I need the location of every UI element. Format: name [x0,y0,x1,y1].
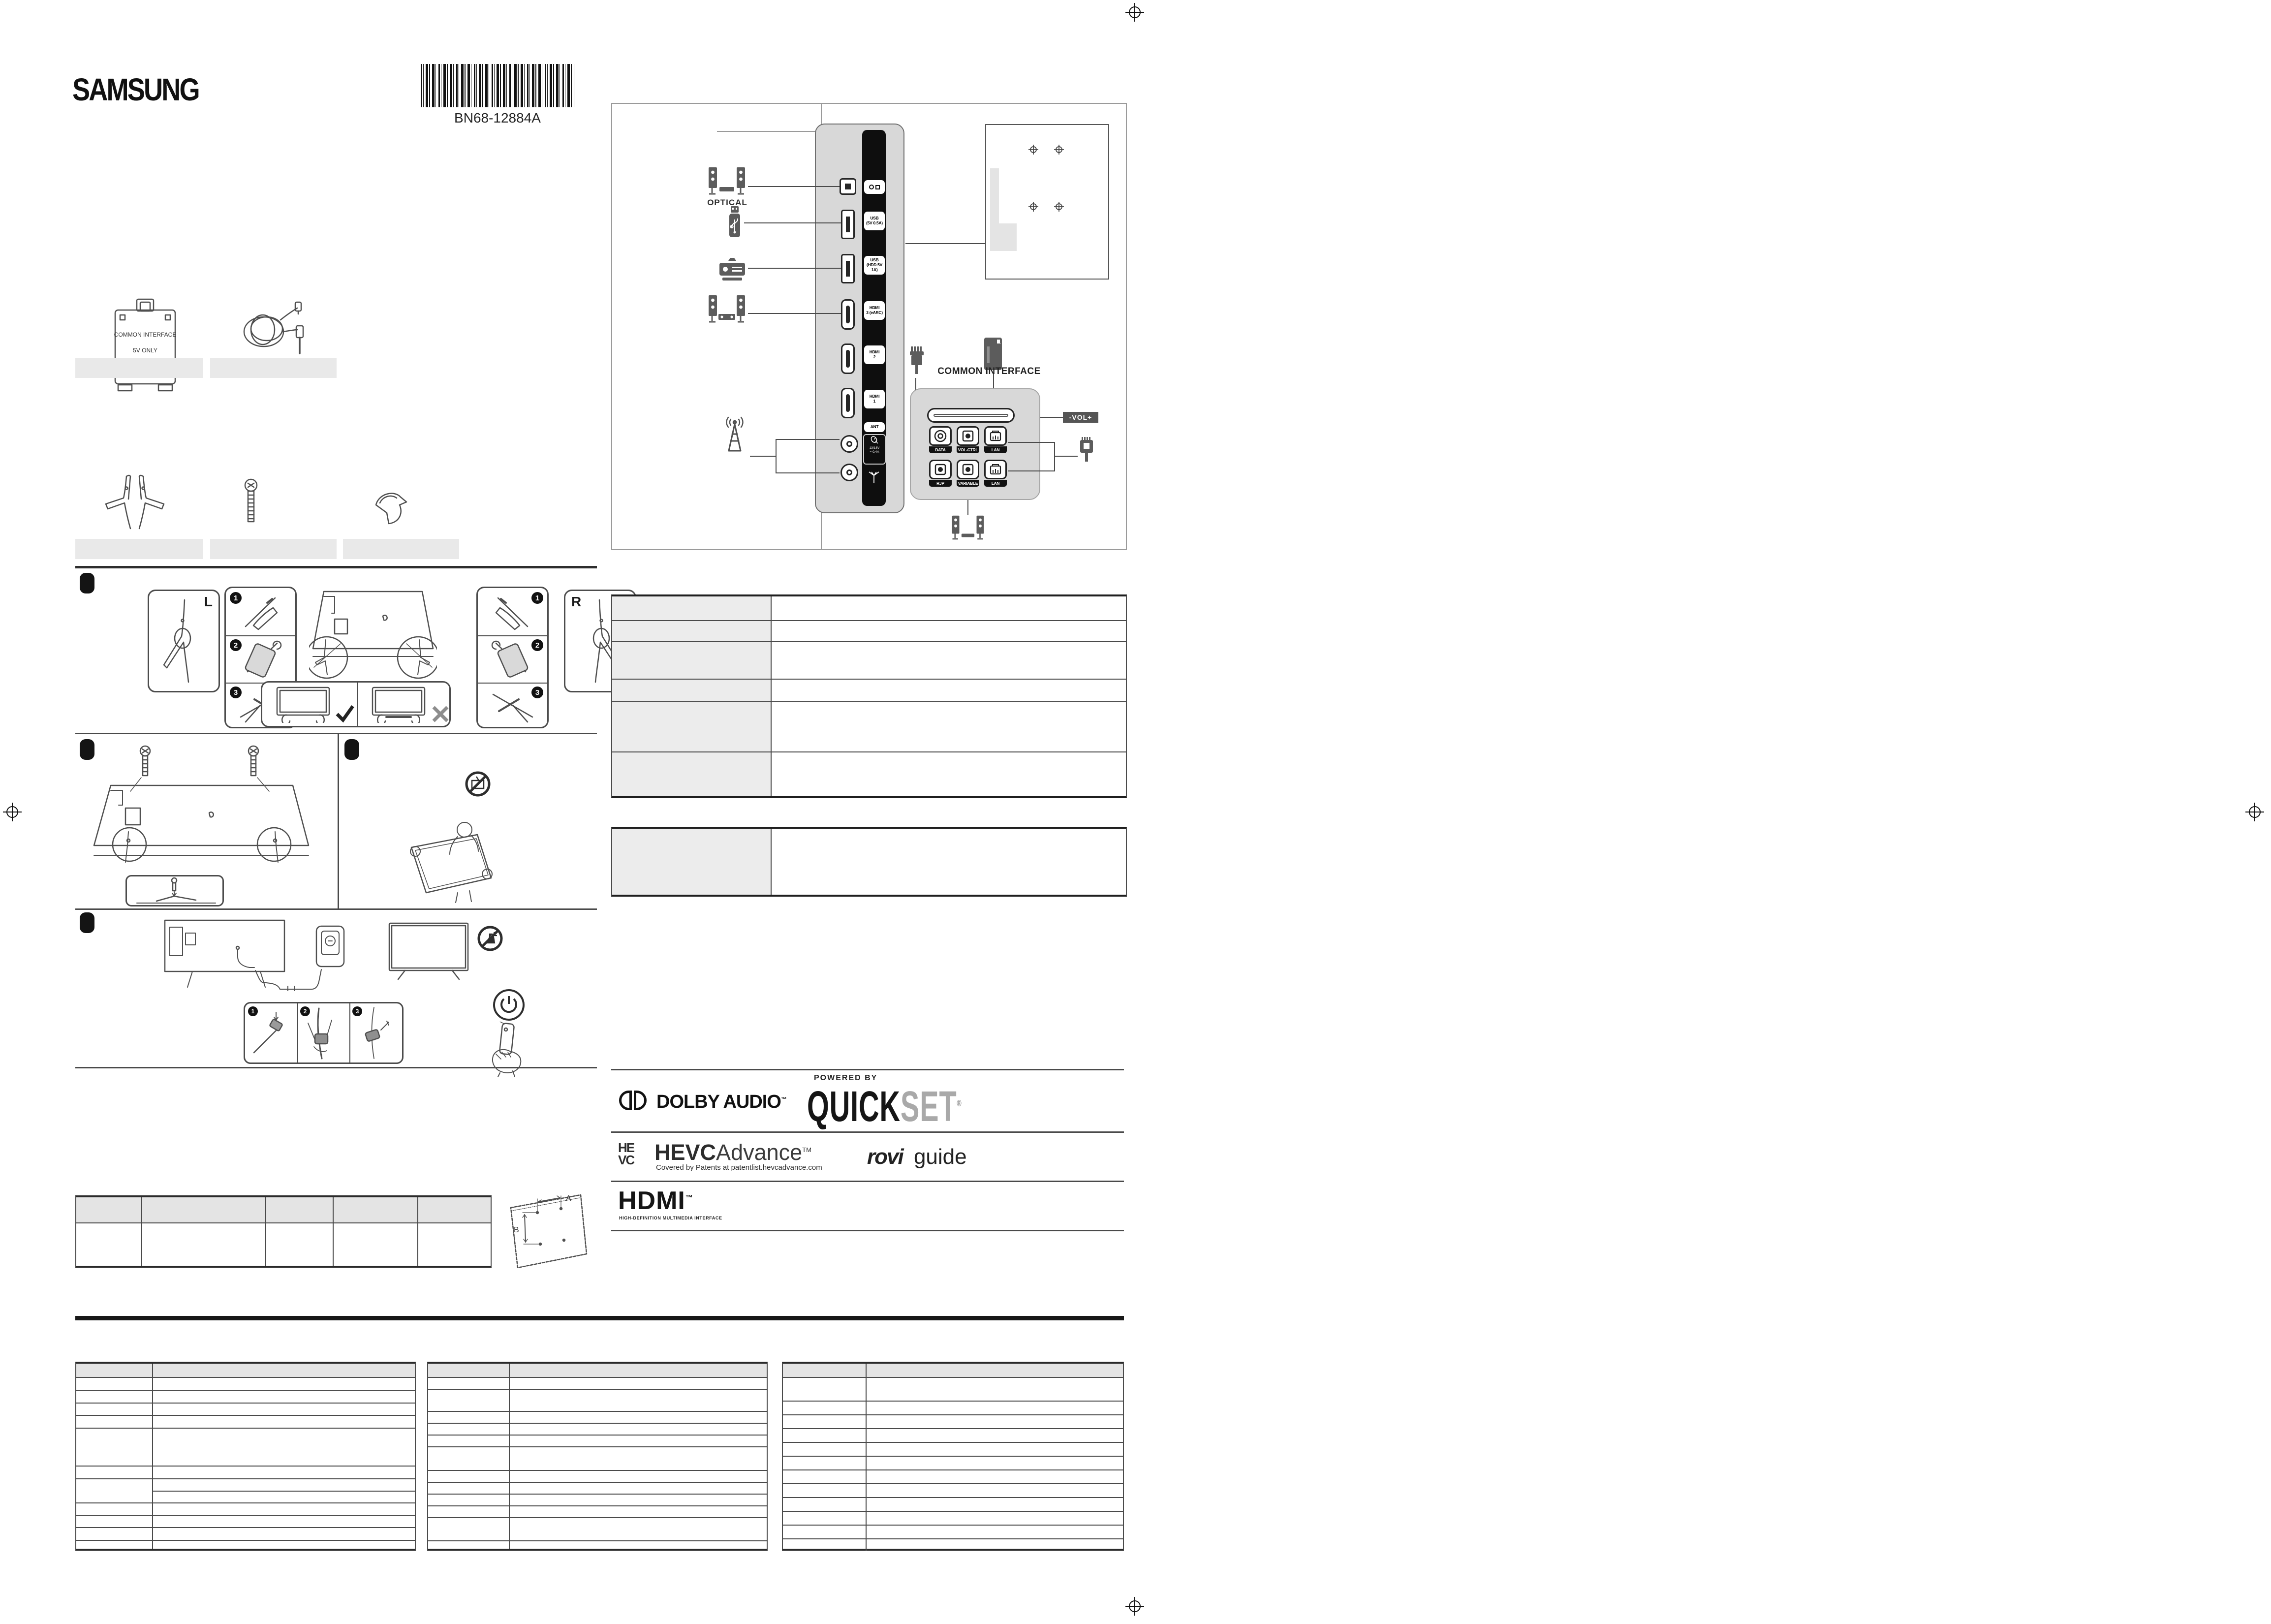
hdmi-port-3 [841,299,855,330]
step-3-badge: 3 [531,687,543,698]
ci-slot [927,408,1015,423]
tv-front-incorrect [372,687,426,723]
samsung-logo: SAMSUNG [72,72,199,108]
logo-divider [611,1131,1124,1133]
leader-line [1054,442,1055,471]
hdmi2-port-label: HDMI2 [864,345,885,364]
no-touch-screen-icon [465,771,491,797]
dim-b-label: B [514,1226,519,1234]
table-row [428,1494,767,1505]
hdd-icon [718,257,746,281]
power-button-callout [493,989,525,1021]
table-row [783,1377,1123,1401]
table-row [76,1466,415,1478]
table-header-row [76,1364,415,1377]
leader-line [748,313,841,314]
vol-ctrl-button: VOL-CTRL [957,426,979,453]
tv-front-illustration [388,922,470,980]
cross-icon [432,705,449,723]
variable-button: VARIABLE [957,460,979,487]
table-row [612,596,1126,620]
rf-cable-icon [908,342,926,377]
bottom-table-3 [782,1362,1124,1551]
section-divider [75,566,597,568]
antenna-icon [721,416,748,453]
power-connect-illustration [164,919,361,991]
table-row [428,1377,767,1389]
usb1-port-label: USB(5V 0.5A) [864,212,885,230]
leader-line [1040,417,1063,418]
ant-satellite-jack [840,435,858,453]
logo-divider [611,1069,1124,1070]
table-row [76,1415,415,1428]
ethernet-cable-icon [1078,433,1095,464]
wall-mount-inset [985,124,1109,280]
hdmi-subtitle: HIGH-DEFINITION MULTIMEDIA INTERFACE [619,1216,722,1220]
speakers-icon [949,515,987,542]
diagram-top-line [717,131,819,132]
screw-illustration [242,478,260,527]
leader-line [905,243,985,244]
registration-mark-icon [2245,803,2264,821]
step-3-badge: 3 [230,687,242,698]
ant-label: ANT [864,422,885,432]
table-header-row [428,1364,767,1377]
dolby-wordmark: DOLBY AUDIO™ [656,1092,786,1113]
section-divider-vertical [338,733,339,910]
assembly-steps-right: 1 2 3 [476,587,549,728]
wall-table-header-row [76,1197,491,1222]
table-row [76,1540,415,1549]
logo-divider [611,1230,1124,1231]
cable-holder-illustration [370,488,411,528]
optical-port-label [864,180,885,194]
hevc-advance-wordmark: HEVCAdvanceTM [654,1140,811,1165]
table-row [428,1446,767,1470]
hevc-icon: HEVC [618,1142,649,1170]
ant-terrestrial-jack [840,464,858,481]
terrestrial-antenna-icon [867,471,881,484]
table-row [783,1525,1123,1538]
leader-line [748,268,841,269]
ci-adapter-text2: 5V ONLY [133,347,157,354]
leader-line [744,222,841,223]
table-row [612,620,1126,641]
step-1-badge: 1 [248,1006,258,1016]
carrying-tv-illustration [403,819,505,904]
wall-mount-table [75,1195,492,1268]
table-row [783,1456,1123,1469]
accessory-label-bar [75,358,203,378]
table-row [428,1411,767,1423]
leader-line [777,439,840,440]
section-3-marker [344,739,359,760]
table-row [612,751,1126,796]
hevc-subtitle: Covered by Patents at patentlist.hevcadv… [656,1163,822,1172]
correct-incorrect-panel [261,681,451,727]
step-2-badge: 2 [300,1006,310,1016]
table-row [428,1540,767,1549]
spec-table-2 [611,827,1127,897]
section-divider [75,908,597,910]
manual-page: SAMSUNG BN68-12884A COMMON INTERFACE 5V … [0,0,2271,1624]
remote-hand-illustration [478,1022,542,1077]
table-row [428,1505,767,1517]
tv-front-correct [276,687,330,723]
section-4-marker [80,912,94,933]
step-2-badge: 2 [531,639,543,651]
cable-tidy-steps: 1 2 3 [244,1002,404,1064]
leader-line [777,472,840,473]
page-divider [75,1316,1124,1320]
leader-line [748,186,840,187]
usb-port-1 [841,210,855,239]
speaker-system-icon [708,166,746,198]
leader-line [967,500,968,515]
leader-line [1055,456,1078,457]
barcode [421,64,574,107]
ci-adapter-text1: COMMON INTERFACE [114,331,177,338]
optical-port [840,178,856,195]
table-row [783,1414,1123,1428]
stand-left-panel: L [148,590,220,692]
table-row [783,1401,1123,1414]
ir-cable-illustration [235,301,316,358]
table-row [76,1390,415,1403]
vol-badge: -VOL+ [1063,412,1098,423]
table-row [783,1497,1123,1511]
registration-mark-icon [1125,3,1144,22]
wall-mount-dimensions: A B [506,1191,594,1272]
leader-line [776,439,777,473]
logo-divider [611,1181,1124,1182]
table-row [76,1428,415,1466]
hdmi-logo: HDMI™ [618,1186,693,1216]
screw-holes [1027,144,1090,218]
satellite-jack-label: 13/18V= 0.4A [863,434,886,465]
table-row [428,1482,767,1494]
table-row [612,679,1126,701]
barcode-text: BN68-12884A [421,110,574,126]
tv-back-illustration [309,589,437,685]
registration-mark-icon [1125,1597,1144,1616]
spec-table-1 [611,594,1127,798]
stand-label-bar [343,539,459,559]
hdmi-port-1 [841,388,855,418]
bottom-table-1 [75,1362,416,1551]
ci-adapter-illustration: COMMON INTERFACE 5V ONLY [112,298,178,395]
section-1-marker [80,573,94,593]
step-3-badge: 3 [352,1006,362,1016]
data-button: DATA [929,426,952,453]
stand-label-bar [75,539,203,559]
leader-line [750,456,776,457]
usb-stick-icon [727,206,742,239]
section-divider [75,733,597,734]
table-row [428,1423,767,1435]
dim-a-label: A [566,1194,571,1203]
table-row-split [76,1478,415,1502]
table-header-row [783,1364,1123,1377]
tv-side-panel [815,124,904,513]
quickset-logo: QUICKSET® [807,1082,962,1131]
usb-port-2 [841,254,855,283]
no-spray-icon [477,925,503,952]
wall-table-row [76,1222,491,1266]
table-row [783,1538,1123,1551]
table-row [783,1442,1123,1456]
table-row [428,1389,767,1411]
table-row [612,829,1126,895]
home-theater-icon [708,294,746,326]
table-row [783,1511,1123,1525]
table-row [76,1527,415,1540]
stand-label-bar [210,539,337,559]
lan-button-1: LAN [984,426,1007,453]
table-row [428,1517,767,1540]
table-row [783,1483,1123,1497]
step-2-badge: 2 [230,639,242,651]
table-row [76,1502,415,1515]
step-1-badge: 1 [531,592,543,604]
registration-mark-icon [3,803,22,821]
common-interface-label: COMMON INTERFACE [930,366,1048,377]
rjp-button: RJP [929,460,952,487]
svg-text:1: 1 [998,340,1001,344]
table-row [428,1470,767,1482]
table-row [612,701,1126,751]
hdmi-port-2 [841,344,855,374]
stand-legs-illustration [101,473,169,531]
leader-line [1008,442,1055,443]
stand-right-letter: R [571,594,581,610]
table-row [76,1515,415,1527]
table-row [428,1435,767,1446]
dolby-icon [619,1091,651,1111]
table-row [76,1377,415,1390]
hdmi1-port-label: HDMI1 [864,390,885,408]
rovi-guide-logo: rovi guide [867,1145,967,1169]
accessory-label-bar [210,358,337,378]
stand-left-letter: L [204,594,213,610]
hdmi3-port-label: HDMI3 (eARC) [864,301,885,320]
screw-mount-illustration [86,744,322,871]
check-icon [335,704,355,723]
table-row [783,1428,1123,1442]
table-row [76,1403,415,1415]
step-1-badge: 1 [230,592,242,604]
table-row [783,1469,1123,1483]
bottom-table-2 [427,1362,768,1551]
table-row [612,641,1126,679]
leader-line [1008,470,1055,471]
lan-button-2: LAN [984,460,1007,487]
screw-detail-inset [125,875,224,906]
usb2-port-label: USB(HDD 5V 1A) [864,256,885,275]
